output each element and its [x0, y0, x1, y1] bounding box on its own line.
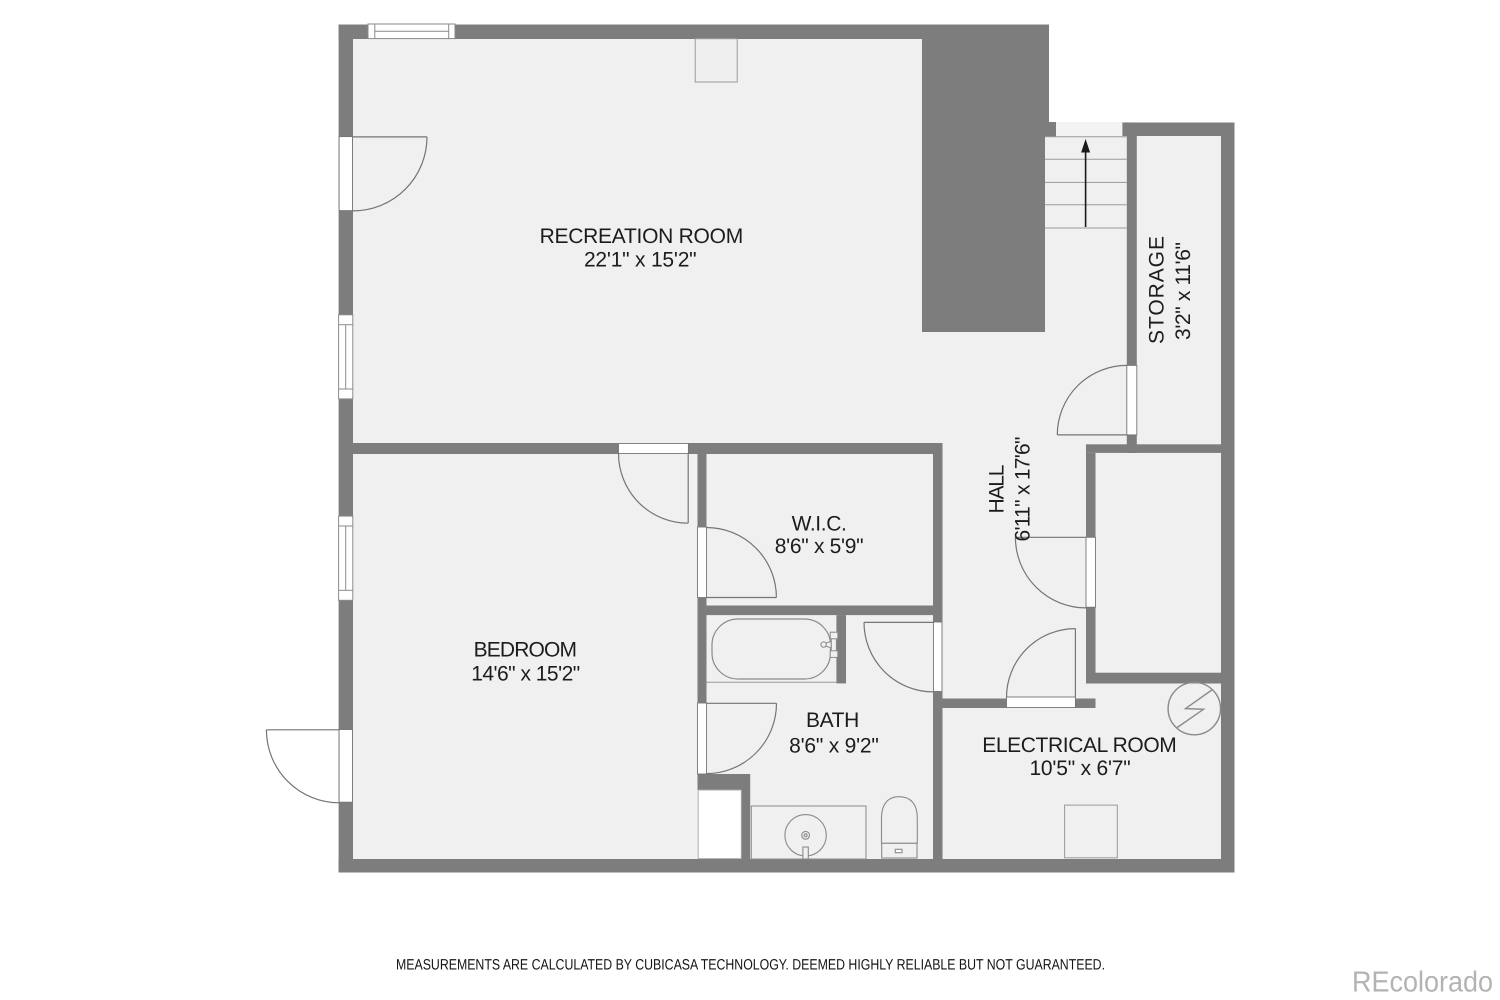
svg-text:HALL: HALL — [986, 465, 1009, 514]
svg-text:STORAGE: STORAGE — [1146, 236, 1169, 344]
svg-text:MEASUREMENTS ARE CALCULATED BY: MEASUREMENTS ARE CALCULATED BY CUBICASA … — [396, 957, 1105, 974]
svg-text:RECREATION ROOM: RECREATION ROOM — [540, 225, 744, 248]
svg-text:BATH: BATH — [806, 709, 859, 732]
svg-text:22'1" x 15'2": 22'1" x 15'2" — [584, 249, 697, 272]
svg-text:8'6" x 5'9": 8'6" x 5'9" — [775, 535, 864, 558]
svg-text:8'6" x 9'2": 8'6" x 9'2" — [789, 734, 879, 757]
svg-text:ELECTRICAL ROOM: ELECTRICAL ROOM — [982, 734, 1177, 757]
svg-text:BEDROOM: BEDROOM — [474, 639, 577, 662]
svg-text:14'6" x 15'2": 14'6" x 15'2" — [471, 663, 580, 686]
svg-text:10'5" x 6'7": 10'5" x 6'7" — [1029, 757, 1130, 780]
svg-text:6'11" x 17'6": 6'11" x 17'6" — [1012, 437, 1035, 542]
svg-text:W.I.C.: W.I.C. — [792, 512, 847, 535]
svg-text:3'2" x 11'6": 3'2" x 11'6" — [1172, 242, 1195, 340]
svg-text:REcolorado: REcolorado — [1352, 967, 1493, 999]
